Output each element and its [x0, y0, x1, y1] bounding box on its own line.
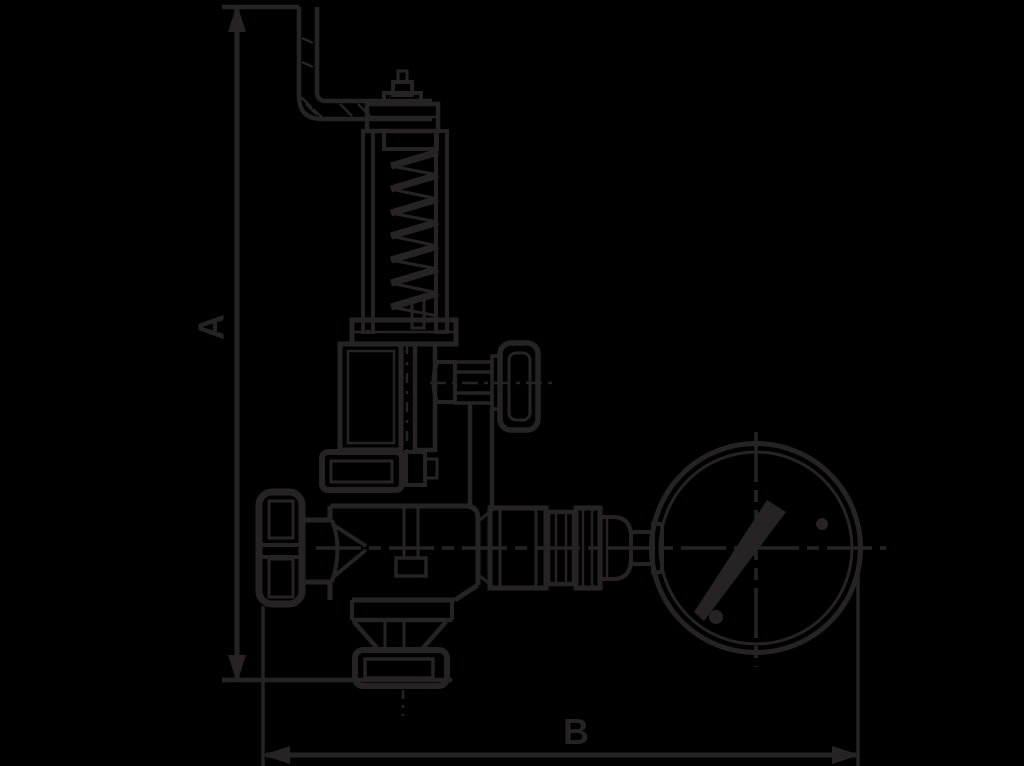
- valve-technical-drawing: A B: [0, 0, 1024, 766]
- side-test-valve: [430, 343, 553, 508]
- bonnet: [340, 320, 456, 452]
- test-knob: [500, 343, 538, 430]
- valve-body: [330, 506, 478, 620]
- gauge-dot-lower: [709, 610, 723, 624]
- label-dimension-b: B: [563, 711, 589, 752]
- outlet-flange: [354, 622, 447, 716]
- gauge-needle: [694, 500, 786, 621]
- label-dimension-a: A: [191, 314, 232, 340]
- dimension-line-b: B: [262, 566, 860, 766]
- spring-coil: [391, 152, 438, 328]
- adjusting-cap: [367, 71, 438, 149]
- union-flange: [322, 452, 437, 490]
- arrow-right-icon: [832, 746, 860, 764]
- arrow-left-icon: [262, 746, 290, 764]
- gauge-dot-right: [816, 518, 828, 530]
